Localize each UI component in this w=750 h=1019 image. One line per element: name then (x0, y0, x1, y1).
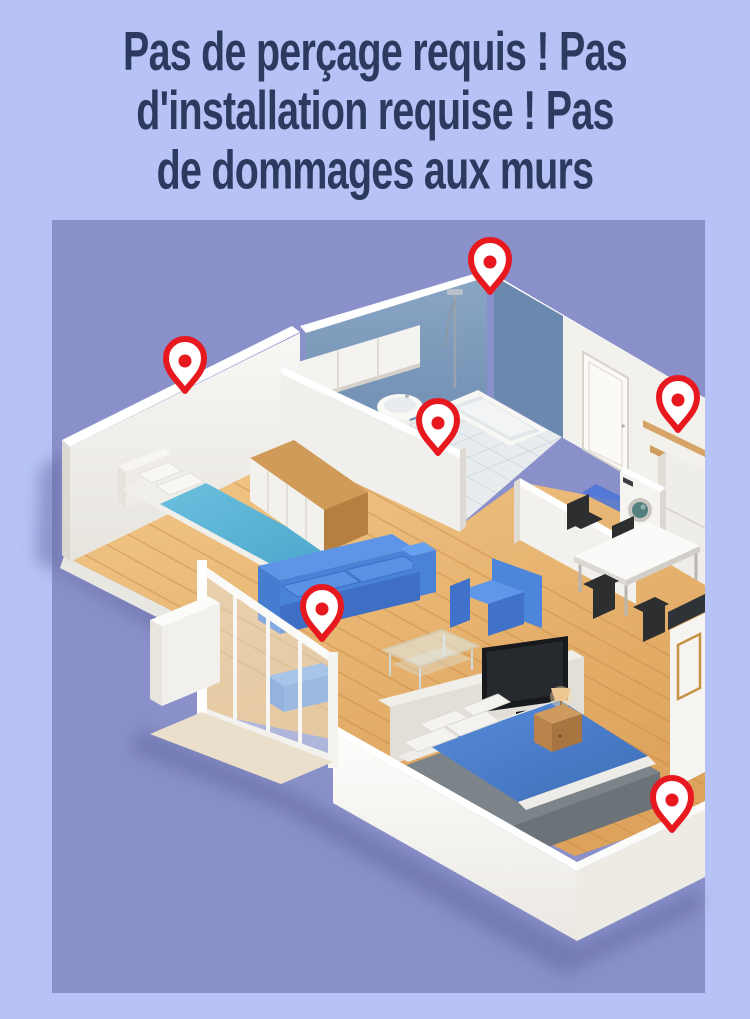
floorplan-illustration (0, 0, 750, 1019)
door-handle (621, 424, 625, 428)
floorplan-figure (0, 0, 750, 1019)
kitchen-counter (668, 594, 705, 790)
shower-head (447, 289, 463, 295)
